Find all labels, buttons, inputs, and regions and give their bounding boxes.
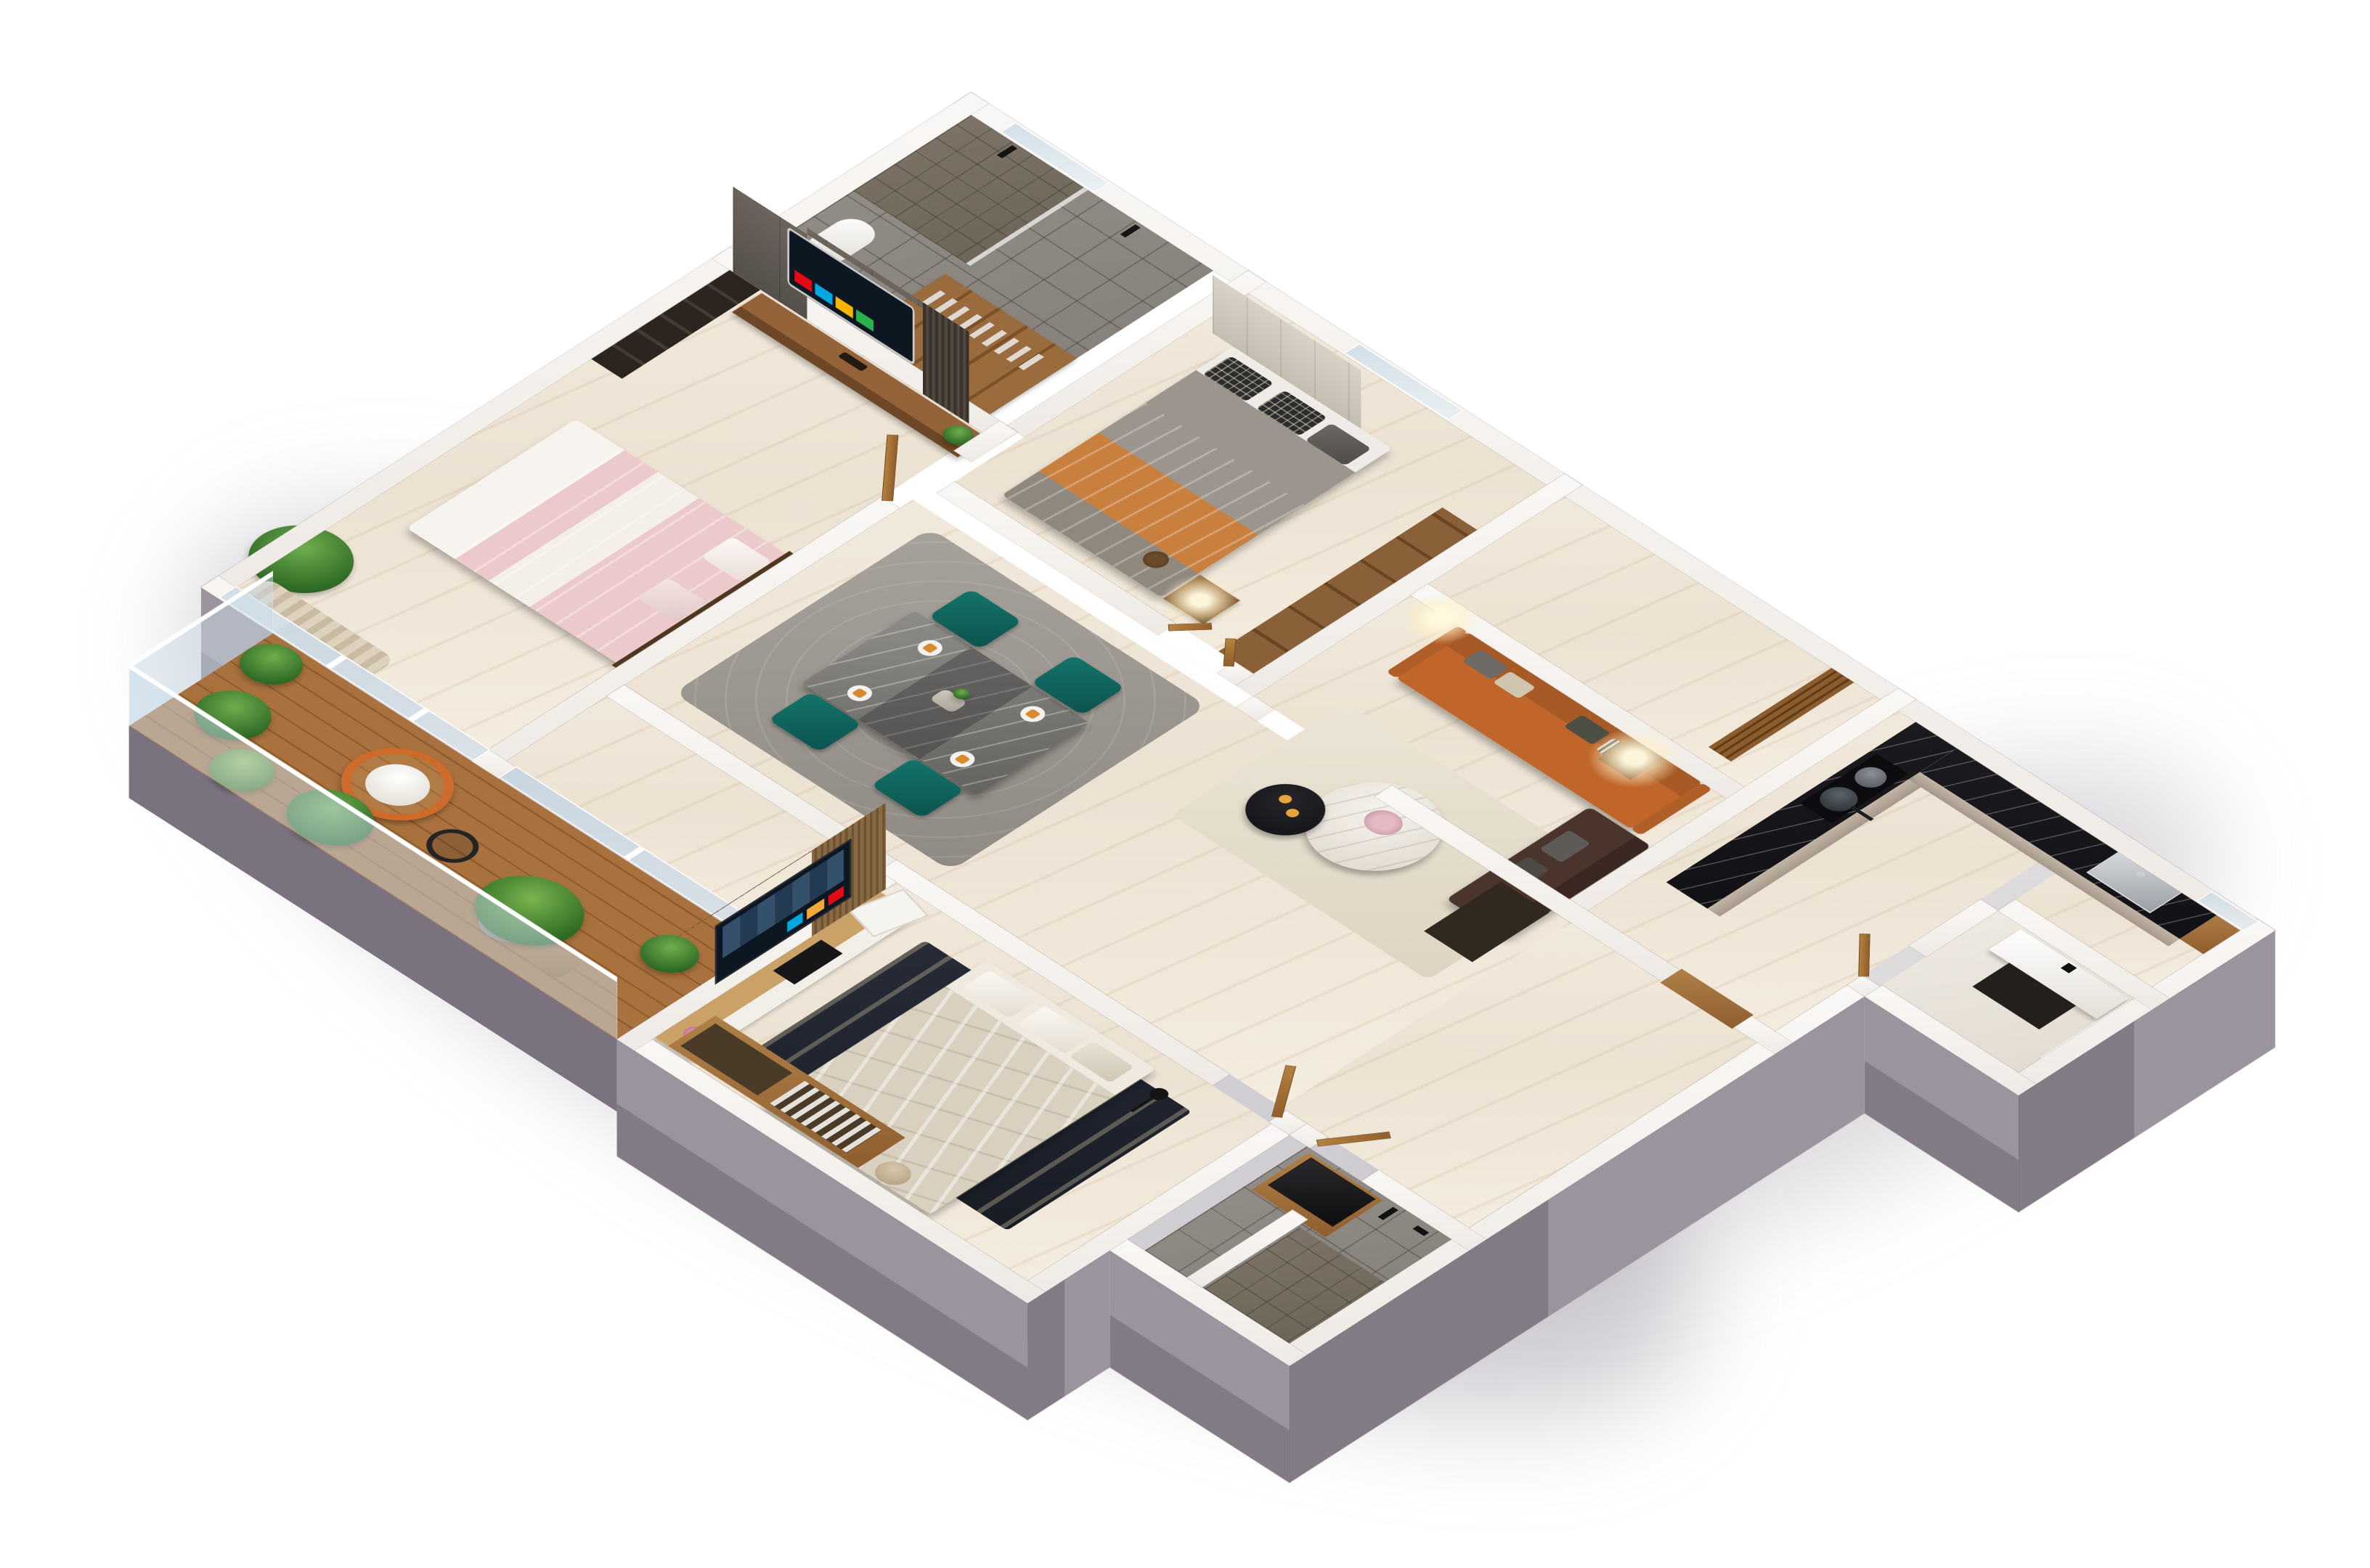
isometric-scene xyxy=(0,0,2370,1568)
tv2-app-tile-blue xyxy=(787,912,802,932)
tv-master-app-tile-blue xyxy=(815,283,832,306)
tv-master-app-tile-yellow xyxy=(836,296,853,319)
tv-master-app-tile-teal xyxy=(856,309,874,332)
apartment-plan xyxy=(26,73,2275,1518)
tv-master-app-tile-red xyxy=(794,270,812,293)
floorplan-render-canvas: { "scene": { "type": "3d-floor-plan-rend… xyxy=(0,0,2370,1568)
tv2-app-tile-red xyxy=(828,886,844,905)
door-powder xyxy=(1859,934,1870,976)
tv2-app-tile-yellow xyxy=(807,899,824,920)
